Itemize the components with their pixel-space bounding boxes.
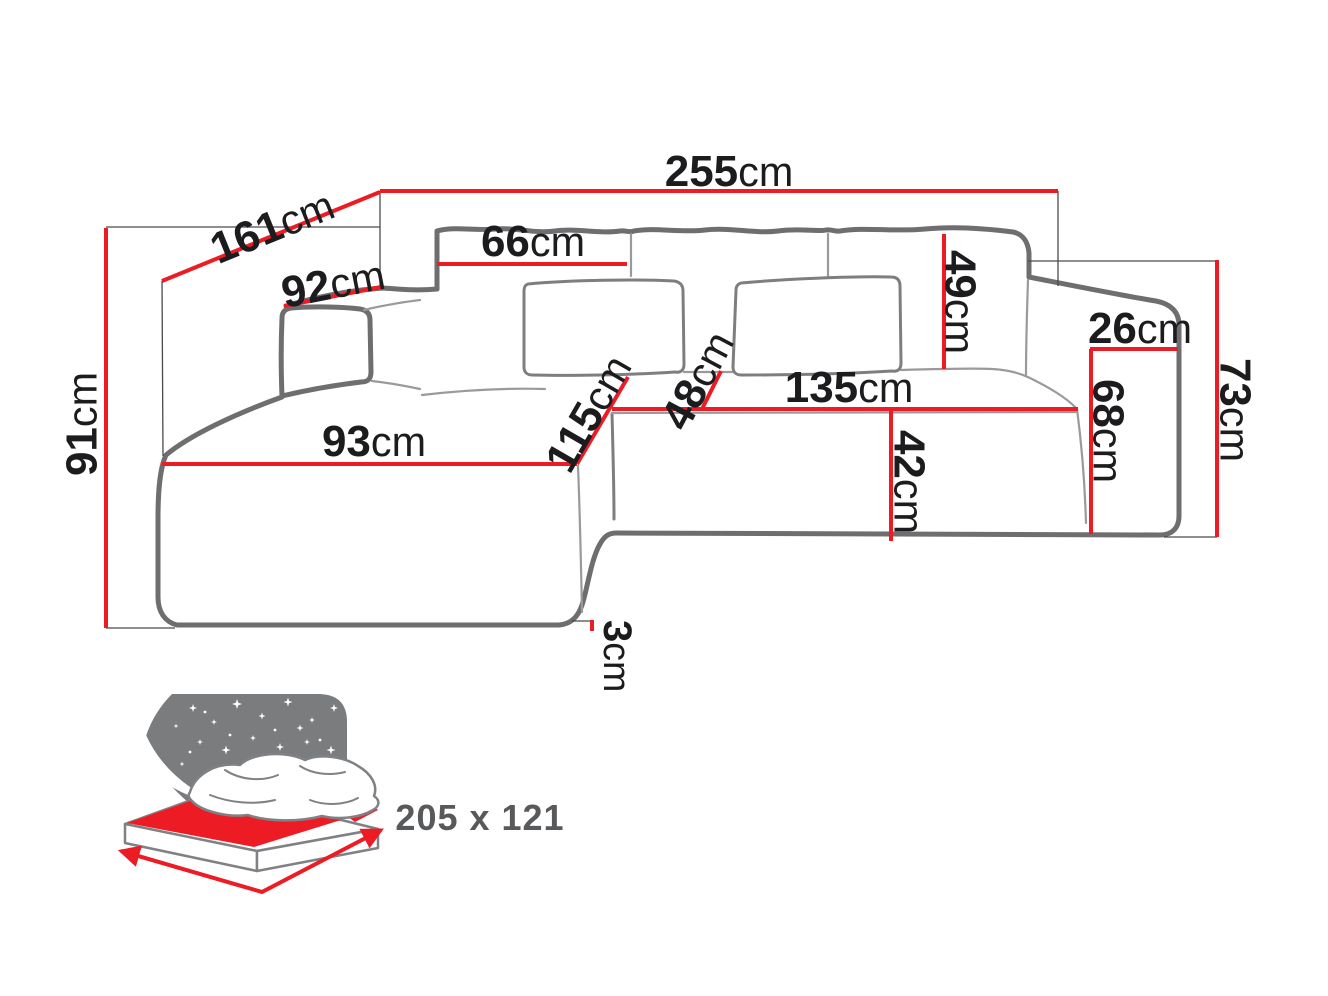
sofa-armrest-left-block: [281, 307, 371, 396]
dim-seat-height-label: 42cm: [885, 430, 934, 534]
sofa-seat-back-edge-left: [422, 389, 545, 395]
dim-chaise-width-label: 93cm: [322, 417, 426, 466]
sofa-dimension-diagram: 255cm 161cm 92cm 91cm 66cm 49cm 26cm 73c…: [0, 0, 1328, 996]
dim-armrest-front-height-label: 68cm: [1084, 379, 1133, 483]
dim-total-width-label: 255cm: [665, 147, 794, 196]
sofa-armrest-bottom-crease: [372, 381, 420, 389]
sofa-back-right-lower-edge: [1026, 280, 1028, 375]
sleeping-area-size-label: 205 x 121: [395, 797, 564, 838]
ext-vertical-x162: [162, 281, 163, 456]
dim-back-cushion-width-label: 66cm: [481, 217, 585, 266]
dim-armrest-height-label: 73cm: [1211, 358, 1260, 462]
dim-seat-width-label: 135cm: [785, 363, 914, 412]
sofa-chaise-right-crease: [578, 466, 582, 612]
sofa-seat-front-left-edge: [612, 414, 614, 519]
dim-diagonal-label: 161cm: [204, 180, 342, 274]
dim-back-cushion-height-label: 49cm: [936, 250, 985, 354]
dim-armrest-width-label: 26cm: [1088, 304, 1192, 353]
sleeping-area-icon: 205 x 121: [121, 694, 565, 892]
dim-clearance-label: 3cm: [595, 620, 639, 692]
pillow-right: [733, 277, 901, 375]
sofa-seat-back-edge-right: [901, 369, 1077, 409]
sofa-armrest-back-crease: [364, 300, 420, 310]
dim-height-label: 91cm: [57, 372, 106, 476]
